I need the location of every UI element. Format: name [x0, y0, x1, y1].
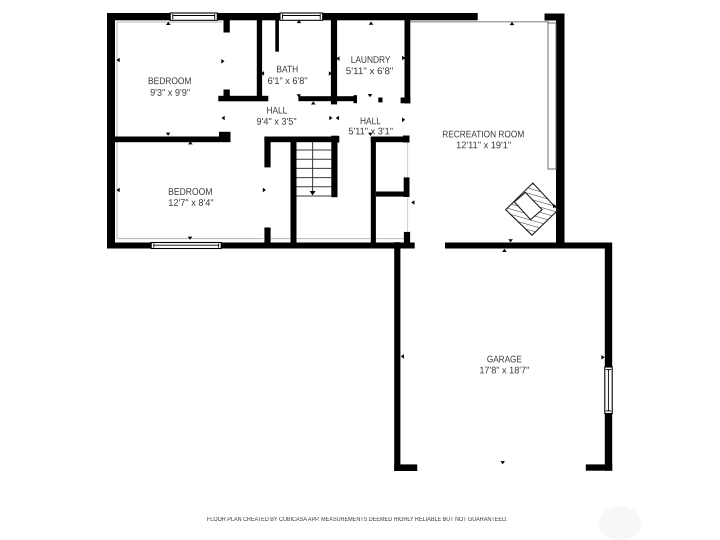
svg-text:6'1" x 6'8": 6'1" x 6'8": [268, 76, 309, 87]
svg-text:HALL: HALL: [266, 105, 287, 116]
svg-text:BEDROOM: BEDROOM: [148, 76, 191, 87]
svg-text:12'7" x 8'4": 12'7" x 8'4": [168, 198, 214, 209]
svg-text:12'11" x 19'1": 12'11" x 19'1": [456, 140, 512, 151]
svg-text:9'3" x 9'9": 9'3" x 9'9": [150, 88, 191, 99]
svg-text:BEDROOM: BEDROOM: [168, 187, 212, 198]
svg-text:17'8" x 18'7": 17'8" x 18'7": [479, 365, 530, 376]
svg-text:5'11" x 3'1": 5'11" x 3'1": [348, 126, 393, 137]
svg-text:FLOOR PLAN CREATED BY CUBICASA: FLOOR PLAN CREATED BY CUBICASA APP. MEAS…: [207, 517, 508, 523]
svg-text:5'11" x 6'8": 5'11" x 6'8": [346, 66, 394, 77]
svg-text:LAUNDRY: LAUNDRY: [351, 55, 391, 66]
svg-text:GARAGE: GARAGE: [487, 354, 522, 365]
svg-text:9'4" x 3'5": 9'4" x 3'5": [257, 117, 298, 128]
svg-text:BATH: BATH: [276, 64, 298, 75]
svg-text:RECREATION ROOM: RECREATION ROOM: [442, 129, 524, 140]
